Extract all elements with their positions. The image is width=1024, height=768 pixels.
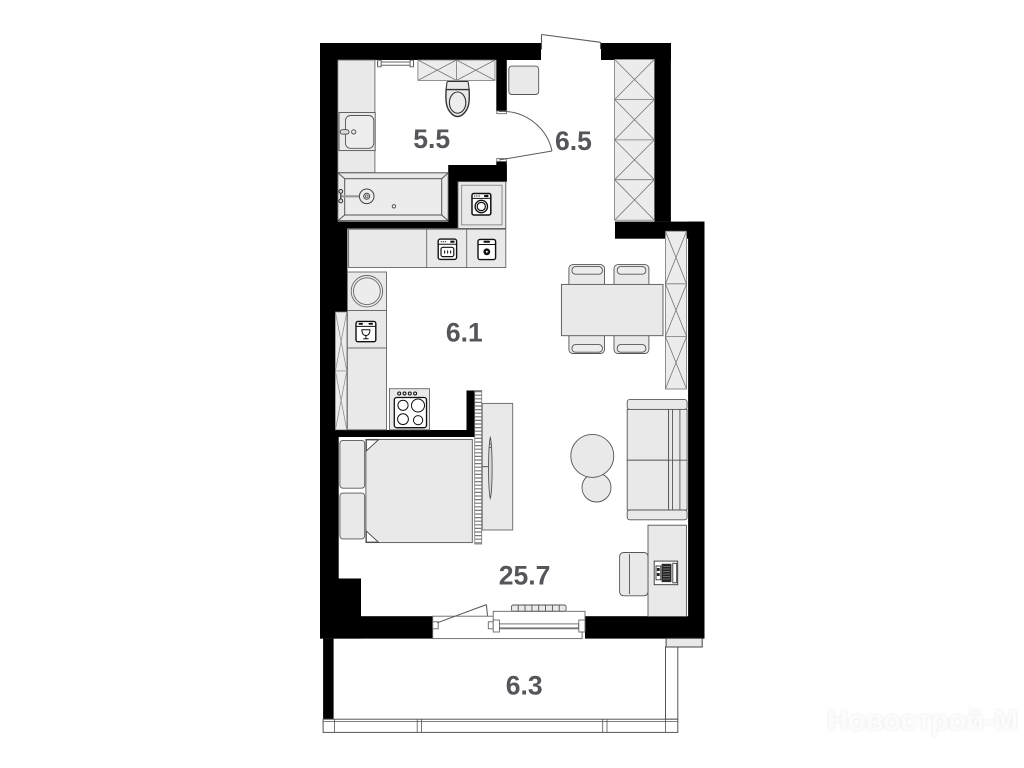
svg-text:6.3: 6.3 (506, 670, 543, 700)
svg-text:5.5: 5.5 (413, 124, 450, 154)
svg-text:Новострой-М: Новострой-М (827, 705, 1018, 737)
svg-text:6.1: 6.1 (446, 318, 483, 348)
svg-text:25.7: 25.7 (499, 561, 551, 591)
svg-text:6.5: 6.5 (555, 126, 592, 156)
